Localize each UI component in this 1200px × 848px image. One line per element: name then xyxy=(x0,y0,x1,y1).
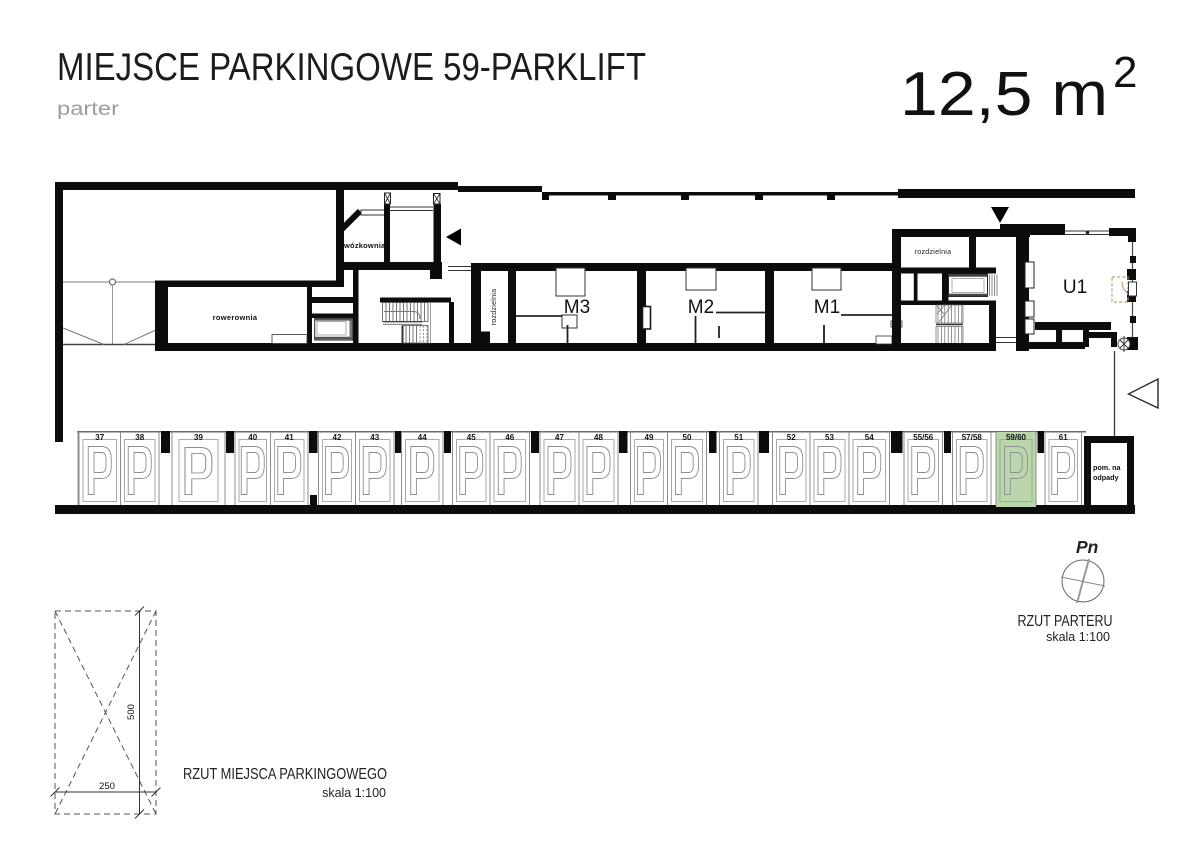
svg-text:54: 54 xyxy=(865,433,874,442)
svg-text:51: 51 xyxy=(734,433,743,442)
svg-text:57/58: 57/58 xyxy=(962,433,983,442)
svg-text:M1: M1 xyxy=(814,297,840,318)
svg-text:Pn: Pn xyxy=(1076,537,1098,557)
svg-text:50: 50 xyxy=(683,433,692,442)
svg-text:RZUT MIEJSCA PARKINGOWEGO: RZUT MIEJSCA PARKINGOWEGO xyxy=(183,766,387,783)
svg-text:37: 37 xyxy=(95,433,104,442)
svg-text:wózkownia: wózkownia xyxy=(343,241,386,250)
svg-text:12,5 m: 12,5 m xyxy=(900,60,1108,129)
svg-text:2: 2 xyxy=(1113,48,1137,97)
svg-text:42: 42 xyxy=(333,433,342,442)
svg-text:rowerownia: rowerownia xyxy=(213,313,258,322)
svg-text:U1: U1 xyxy=(1063,277,1087,298)
svg-text:250: 250 xyxy=(99,781,115,792)
svg-text:49: 49 xyxy=(645,433,654,442)
svg-text:MIEJSCE PARKINGOWE 59-PARKLIFT: MIEJSCE PARKINGOWE 59-PARKLIFT xyxy=(57,46,646,89)
svg-text:M2: M2 xyxy=(688,297,714,318)
svg-text:parter: parter xyxy=(57,99,120,120)
svg-text:rozdzielnia: rozdzielnia xyxy=(489,289,498,326)
svg-text:53: 53 xyxy=(825,433,834,442)
svg-text:40: 40 xyxy=(248,433,257,442)
svg-text:rozdzielnia: rozdzielnia xyxy=(915,247,952,256)
svg-text:RZUT PARTERU: RZUT PARTERU xyxy=(1018,613,1113,630)
svg-text:47: 47 xyxy=(555,433,564,442)
svg-text:45: 45 xyxy=(467,433,476,442)
svg-text:38: 38 xyxy=(135,433,144,442)
svg-text:61: 61 xyxy=(1059,433,1068,442)
svg-text:500: 500 xyxy=(126,704,137,720)
svg-text:44: 44 xyxy=(418,433,427,442)
svg-text:skala 1:100: skala 1:100 xyxy=(322,786,386,800)
svg-text:39: 39 xyxy=(194,433,203,442)
svg-text:55/56: 55/56 xyxy=(913,433,934,442)
svg-text:43: 43 xyxy=(370,433,379,442)
svg-text:48: 48 xyxy=(594,433,603,442)
svg-text:skala 1:100: skala 1:100 xyxy=(1046,630,1110,644)
svg-text:41: 41 xyxy=(285,433,294,442)
svg-text:59/60: 59/60 xyxy=(1006,433,1027,442)
svg-text:odpady: odpady xyxy=(1093,473,1119,482)
svg-text:46: 46 xyxy=(505,433,514,442)
svg-text:pom. na: pom. na xyxy=(1093,463,1122,472)
svg-text:52: 52 xyxy=(787,433,796,442)
